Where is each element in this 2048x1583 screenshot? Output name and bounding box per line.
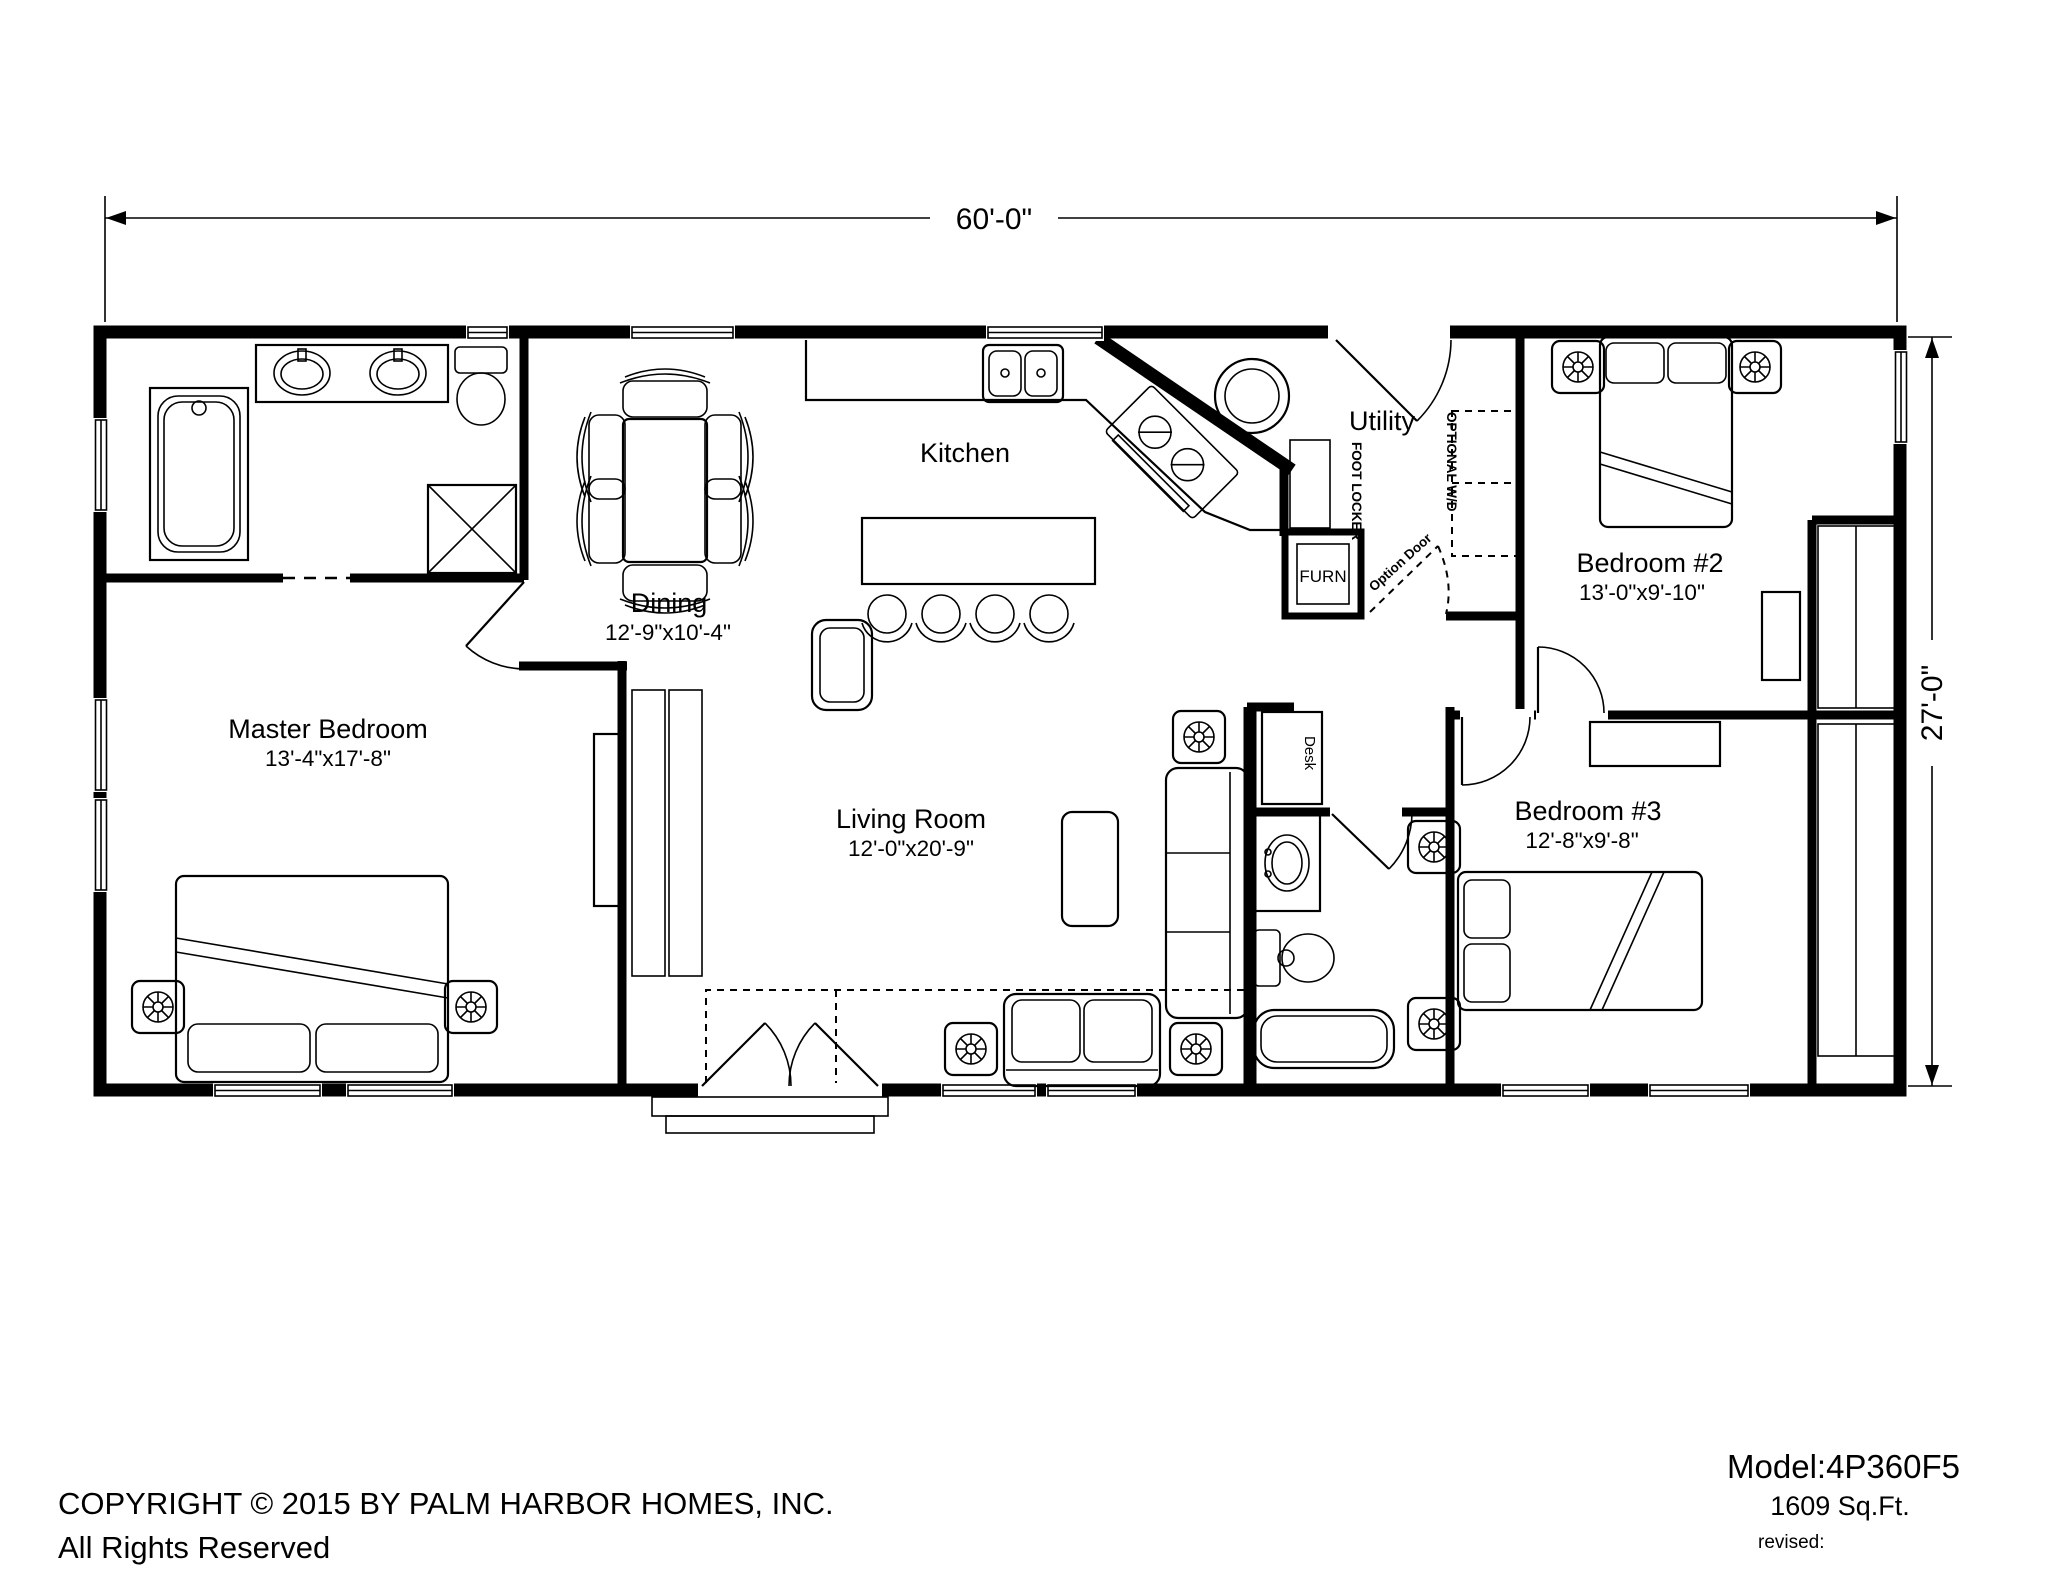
- window: [346, 1082, 454, 1099]
- bathroom-vanity: [1254, 815, 1320, 911]
- stool: [916, 595, 966, 642]
- overall-width-label: 60'-0": [956, 203, 1032, 236]
- armchair: [812, 620, 872, 710]
- dresser: [594, 734, 620, 906]
- master-bath: [150, 345, 516, 573]
- window: [986, 323, 1104, 341]
- nightstand-lamp: [1729, 341, 1781, 393]
- copyright-line: COPYRIGHT © 2015 BY PALM HARBOR HOMES, I…: [58, 1486, 834, 1521]
- window: [941, 1082, 1037, 1099]
- vanity-double-sink: [256, 345, 448, 402]
- bathroom-door: [1332, 812, 1412, 869]
- room-label-utility: Utility: [1349, 406, 1415, 436]
- room-size-bedroom-2: 13'-0"x9'-10": [1579, 580, 1705, 605]
- title-block: Model:4P360F5 1609 Sq.Ft. revised:: [1727, 1448, 1960, 1553]
- bathroom-tub: [1254, 1010, 1394, 1068]
- room-label-dining: Dining: [631, 588, 708, 618]
- utility-room: Utility FOOT LOCKER FURN OPTIONAL W/D: [1285, 406, 1518, 616]
- closet: [1818, 724, 1896, 1056]
- nightstand-lamp: [1552, 341, 1604, 393]
- end-table-lamp: [1170, 1023, 1222, 1075]
- option-door: Option Door: [1366, 530, 1449, 614]
- desk: Desk: [1262, 712, 1322, 804]
- top-dimension: 60'-0": [105, 196, 1897, 322]
- bed-2: [1600, 337, 1732, 527]
- room-label-master-bedroom: Master Bedroom: [228, 714, 428, 744]
- stool: [1024, 595, 1074, 642]
- window: [1046, 1082, 1137, 1099]
- porch-steps: [652, 1097, 888, 1133]
- window: [1892, 350, 1909, 444]
- dining-chair: [620, 369, 710, 417]
- master-bedroom-door: [466, 582, 524, 669]
- foot-locker: FOOT LOCKER: [1290, 440, 1364, 540]
- dining-chair: [577, 412, 625, 502]
- optional-wd-label: OPTIONAL W/D: [1444, 412, 1459, 512]
- footer: COPYRIGHT © 2015 BY PALM HARBOR HOMES, I…: [58, 1486, 834, 1565]
- room-label-living-room: Living Room: [836, 804, 986, 834]
- room-label-kitchen: Kitchen: [920, 438, 1010, 468]
- shower: [428, 485, 516, 573]
- dining-chair: [577, 476, 625, 566]
- model-number: Model:4P360F5: [1727, 1448, 1960, 1485]
- toilet: [455, 347, 507, 425]
- window: [92, 698, 109, 792]
- dining-room: Dining 12'-9"x10'-4": [577, 369, 753, 645]
- option-door-label: Option Door: [1366, 530, 1435, 594]
- window: [213, 1082, 322, 1099]
- window: [92, 418, 109, 512]
- nightstand-lamp: [445, 981, 497, 1033]
- bedroom-3: Bedroom #3 12'-8"x9'-8": [1408, 722, 1896, 1056]
- room-label-bedroom-2: Bedroom #2: [1576, 548, 1723, 578]
- bed-3: [1458, 872, 1702, 1010]
- window: [92, 798, 109, 892]
- kitchen-island: [862, 518, 1095, 642]
- dining-chair: [705, 412, 753, 502]
- foot-locker-label: FOOT LOCKER: [1349, 442, 1364, 540]
- sofa: [1166, 768, 1248, 1018]
- counter-edge: [806, 340, 1284, 530]
- revised-label: revised:: [1758, 1532, 1825, 1553]
- master-bedroom: Master Bedroom 13'-4"x17'-8": [132, 690, 702, 1082]
- dresser: [1590, 722, 1720, 766]
- loveseat: [1004, 994, 1160, 1086]
- window: [466, 323, 509, 341]
- living-room: Living Room 12'-0"x20'-9": [706, 620, 1250, 1086]
- room-label-bedroom-3: Bedroom #3: [1514, 796, 1661, 826]
- closet: [1818, 526, 1896, 708]
- furnace-closet: FURN: [1285, 532, 1361, 616]
- room-size-master-bedroom: 13'-4"x17'-8": [265, 746, 391, 771]
- room-size-bedroom-3: 12'-8"x9'-8": [1525, 828, 1638, 853]
- stool: [970, 595, 1020, 642]
- window: [630, 323, 735, 341]
- wardrobe: [632, 690, 702, 976]
- coffee-table: [1062, 812, 1118, 926]
- furnace-label: FURN: [1299, 567, 1346, 586]
- end-table-lamp: [945, 1023, 997, 1075]
- right-dimension: 27'-0": [1908, 337, 1952, 1086]
- stool: [862, 595, 912, 642]
- floor-plan-canvas: 60'-0" 27'-0": [0, 0, 2048, 1583]
- master-bed: [176, 876, 448, 1082]
- bathroom-toilet: [1254, 930, 1334, 986]
- overall-depth-label: 27'-0": [1916, 665, 1949, 741]
- dresser: [1762, 592, 1800, 680]
- rights-line: All Rights Reserved: [58, 1530, 330, 1565]
- hall-and-bath: Desk: [1254, 712, 1394, 1068]
- doors: Option Door: [466, 324, 1608, 1099]
- optional-washer-dryer: OPTIONAL W/D: [1444, 411, 1518, 556]
- room-size-dining: 12'-9"x10'-4": [605, 620, 731, 645]
- window: [1501, 1082, 1590, 1099]
- end-table-lamp: [1173, 711, 1225, 763]
- bathtub: [150, 388, 248, 560]
- bedroom-3-door: [1460, 709, 1534, 785]
- range: [1104, 385, 1239, 520]
- desk-label: Desk: [1301, 736, 1318, 771]
- kitchen: Kitchen: [806, 340, 1289, 642]
- window: [1648, 1082, 1750, 1099]
- water-heater: [1215, 359, 1289, 433]
- square-footage: 1609 Sq.Ft.: [1770, 1491, 1910, 1521]
- dining-chair: [705, 476, 753, 566]
- room-size-living-room: 12'-0"x20'-9": [848, 836, 974, 861]
- bedroom-2-door: [1536, 647, 1608, 721]
- entry-doors: [698, 1023, 882, 1099]
- dining-table: [623, 419, 707, 562]
- kitchen-sink: [983, 345, 1063, 402]
